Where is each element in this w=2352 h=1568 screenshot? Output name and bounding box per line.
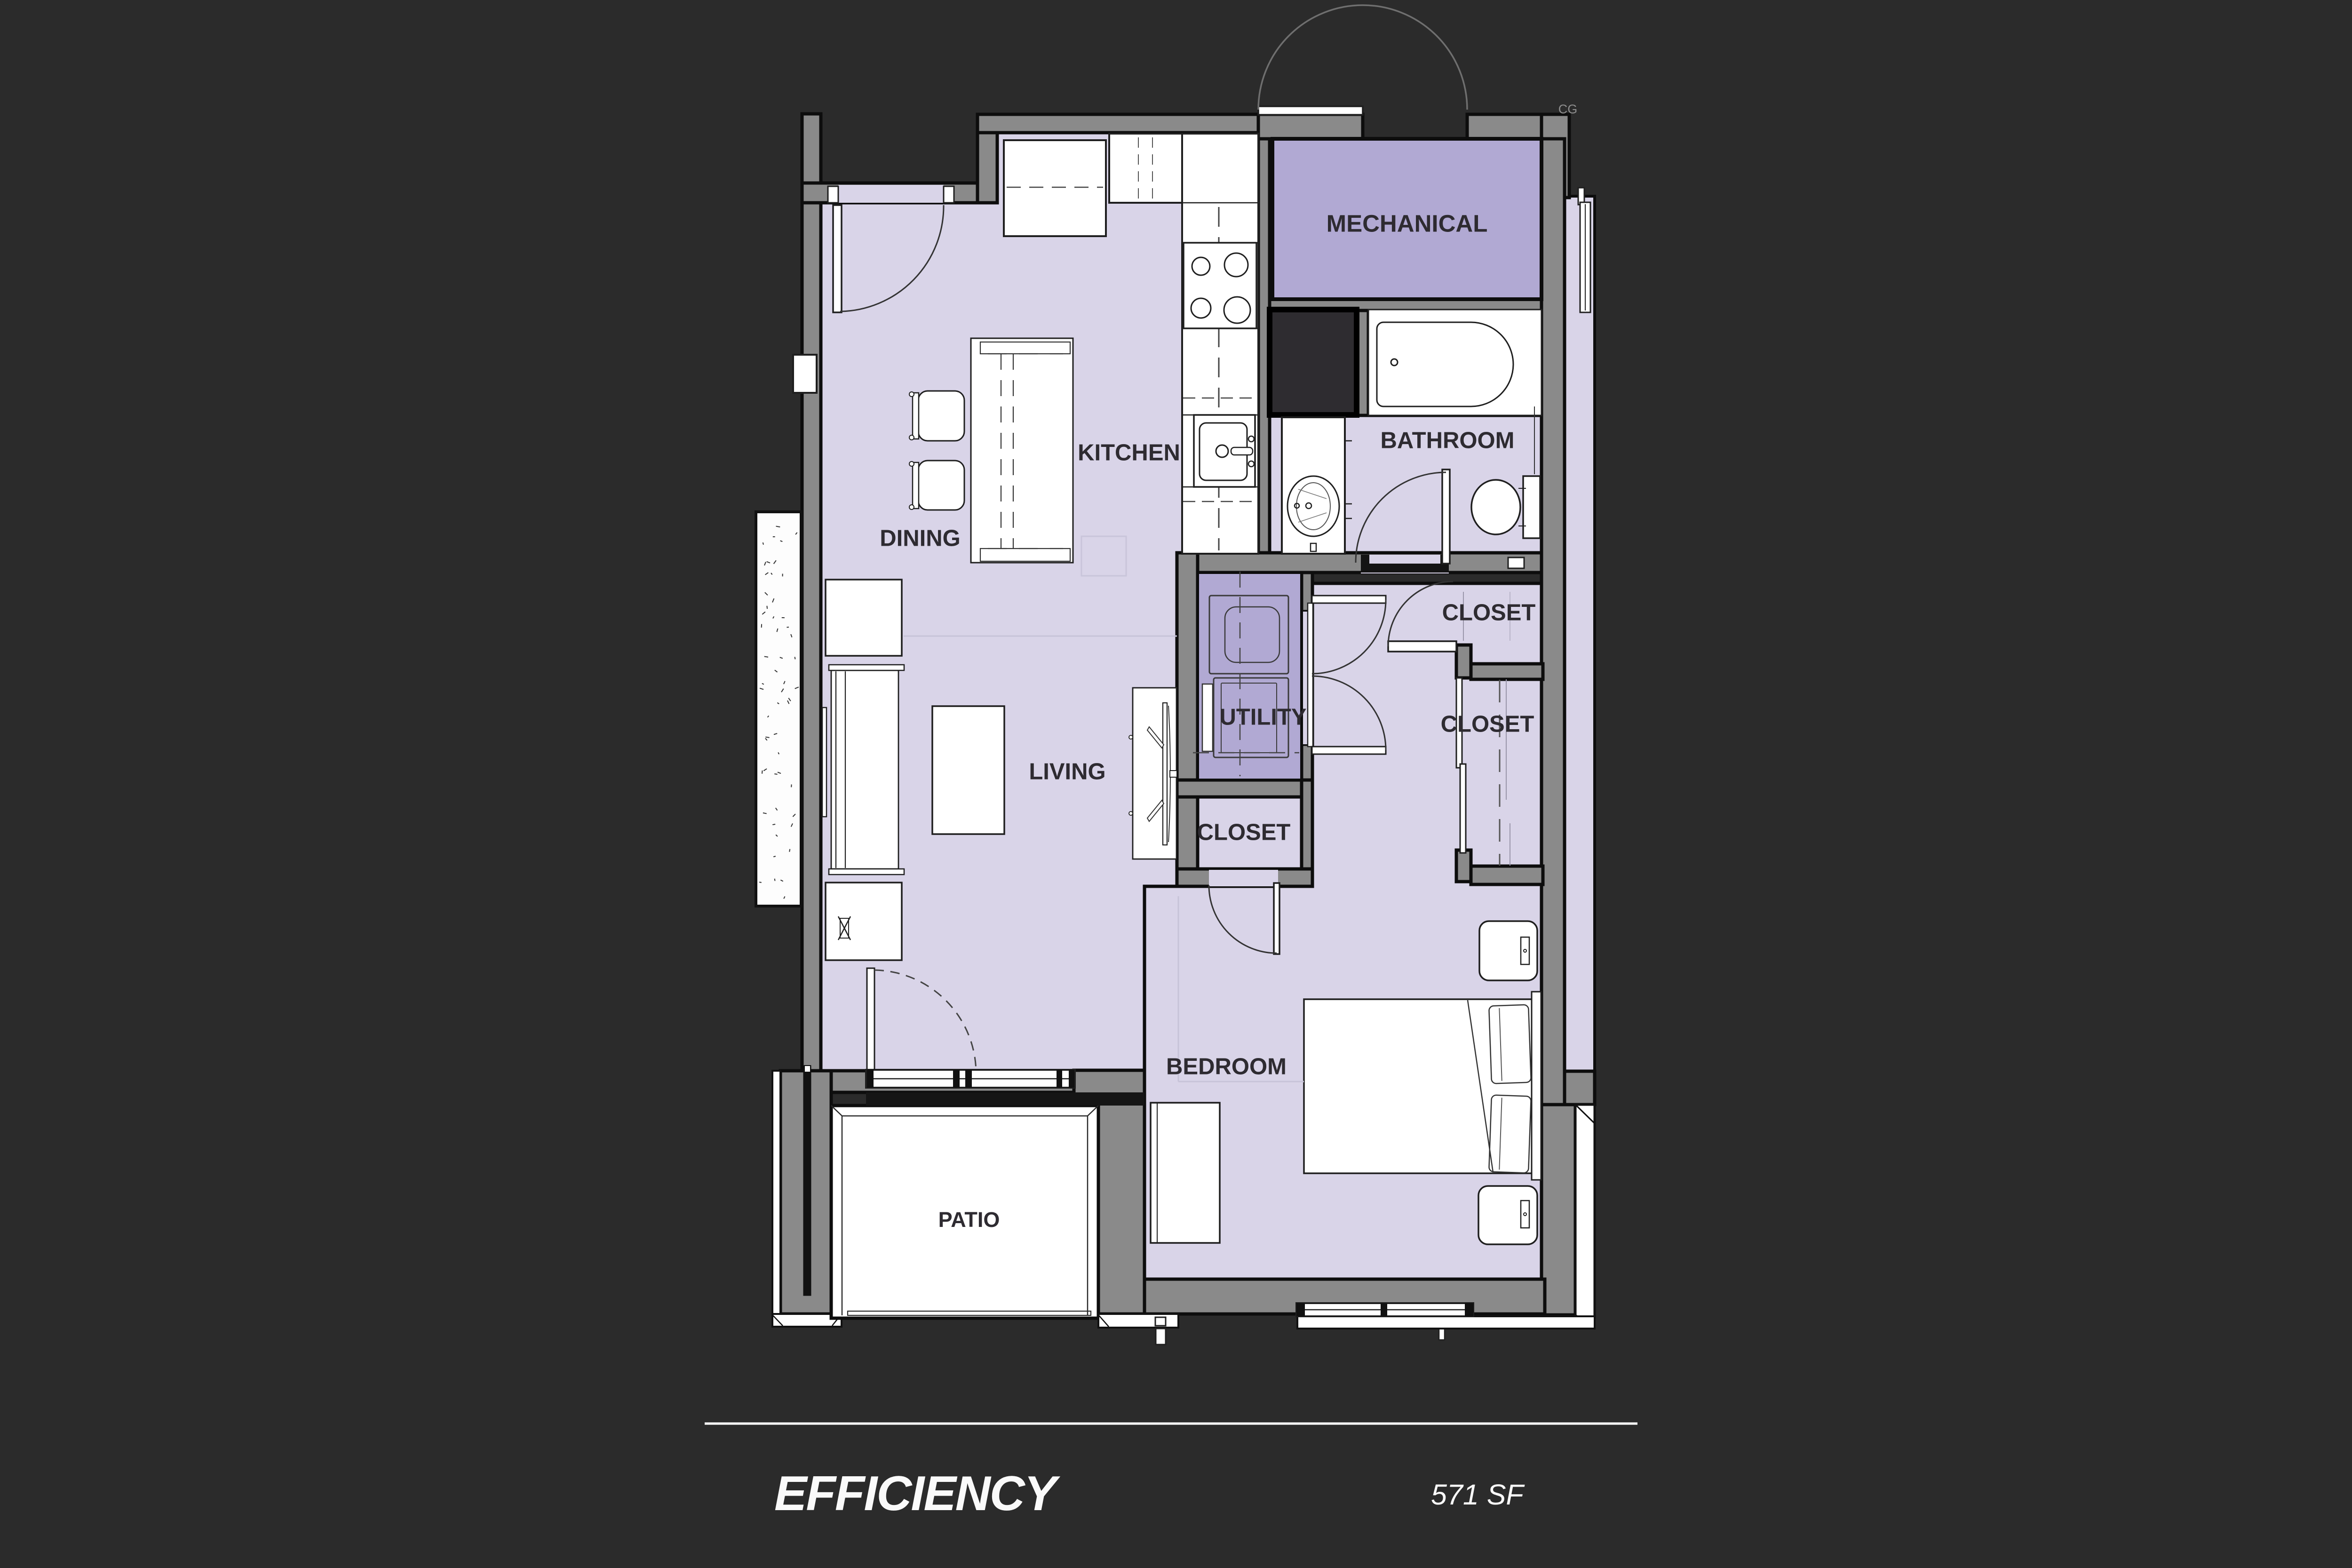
svg-text:CG: CG (1558, 102, 1578, 116)
svg-text:EFFICIENCY: EFFICIENCY (774, 1466, 1061, 1521)
svg-text:BEDROOM: BEDROOM (1166, 1054, 1287, 1080)
svg-text:DINING: DINING (880, 526, 961, 551)
svg-text:LIVING: LIVING (1029, 759, 1105, 785)
svg-text:CLOSET: CLOSET (1197, 820, 1291, 845)
svg-text:MECHANICAL: MECHANICAL (1327, 210, 1488, 237)
svg-text:PATIO: PATIO (938, 1208, 1000, 1232)
svg-text:CLOSET: CLOSET (1441, 712, 1534, 737)
svg-text:UTILITY: UTILITY (1219, 705, 1306, 730)
svg-text:KITCHEN: KITCHEN (1078, 440, 1180, 466)
svg-text:571 SF: 571 SF (1431, 1479, 1525, 1511)
svg-text:CLOSET: CLOSET (1442, 600, 1536, 626)
svg-text:BATHROOM: BATHROOM (1381, 428, 1515, 454)
